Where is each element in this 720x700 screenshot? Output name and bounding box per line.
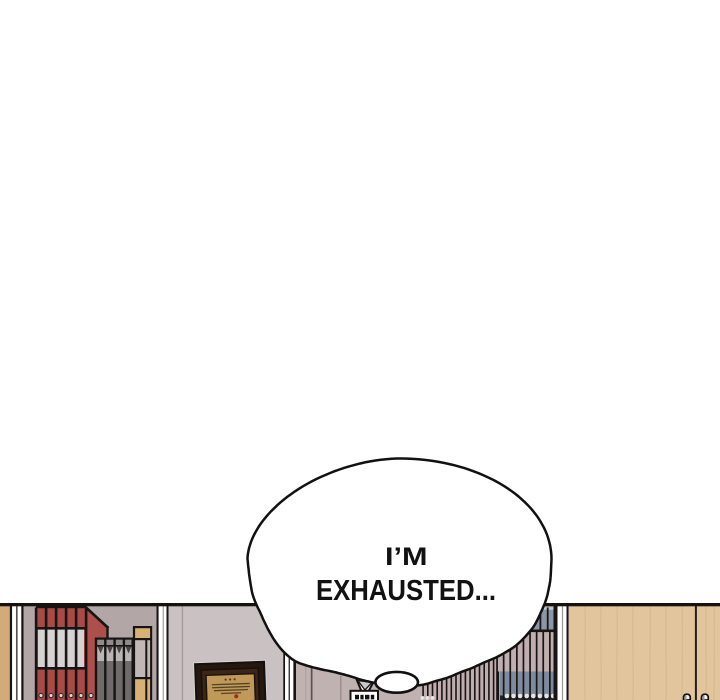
svg-text:I’M: I’M	[385, 543, 428, 571]
svg-text:EXHAUSTED...: EXHAUSTED...	[316, 575, 496, 607]
